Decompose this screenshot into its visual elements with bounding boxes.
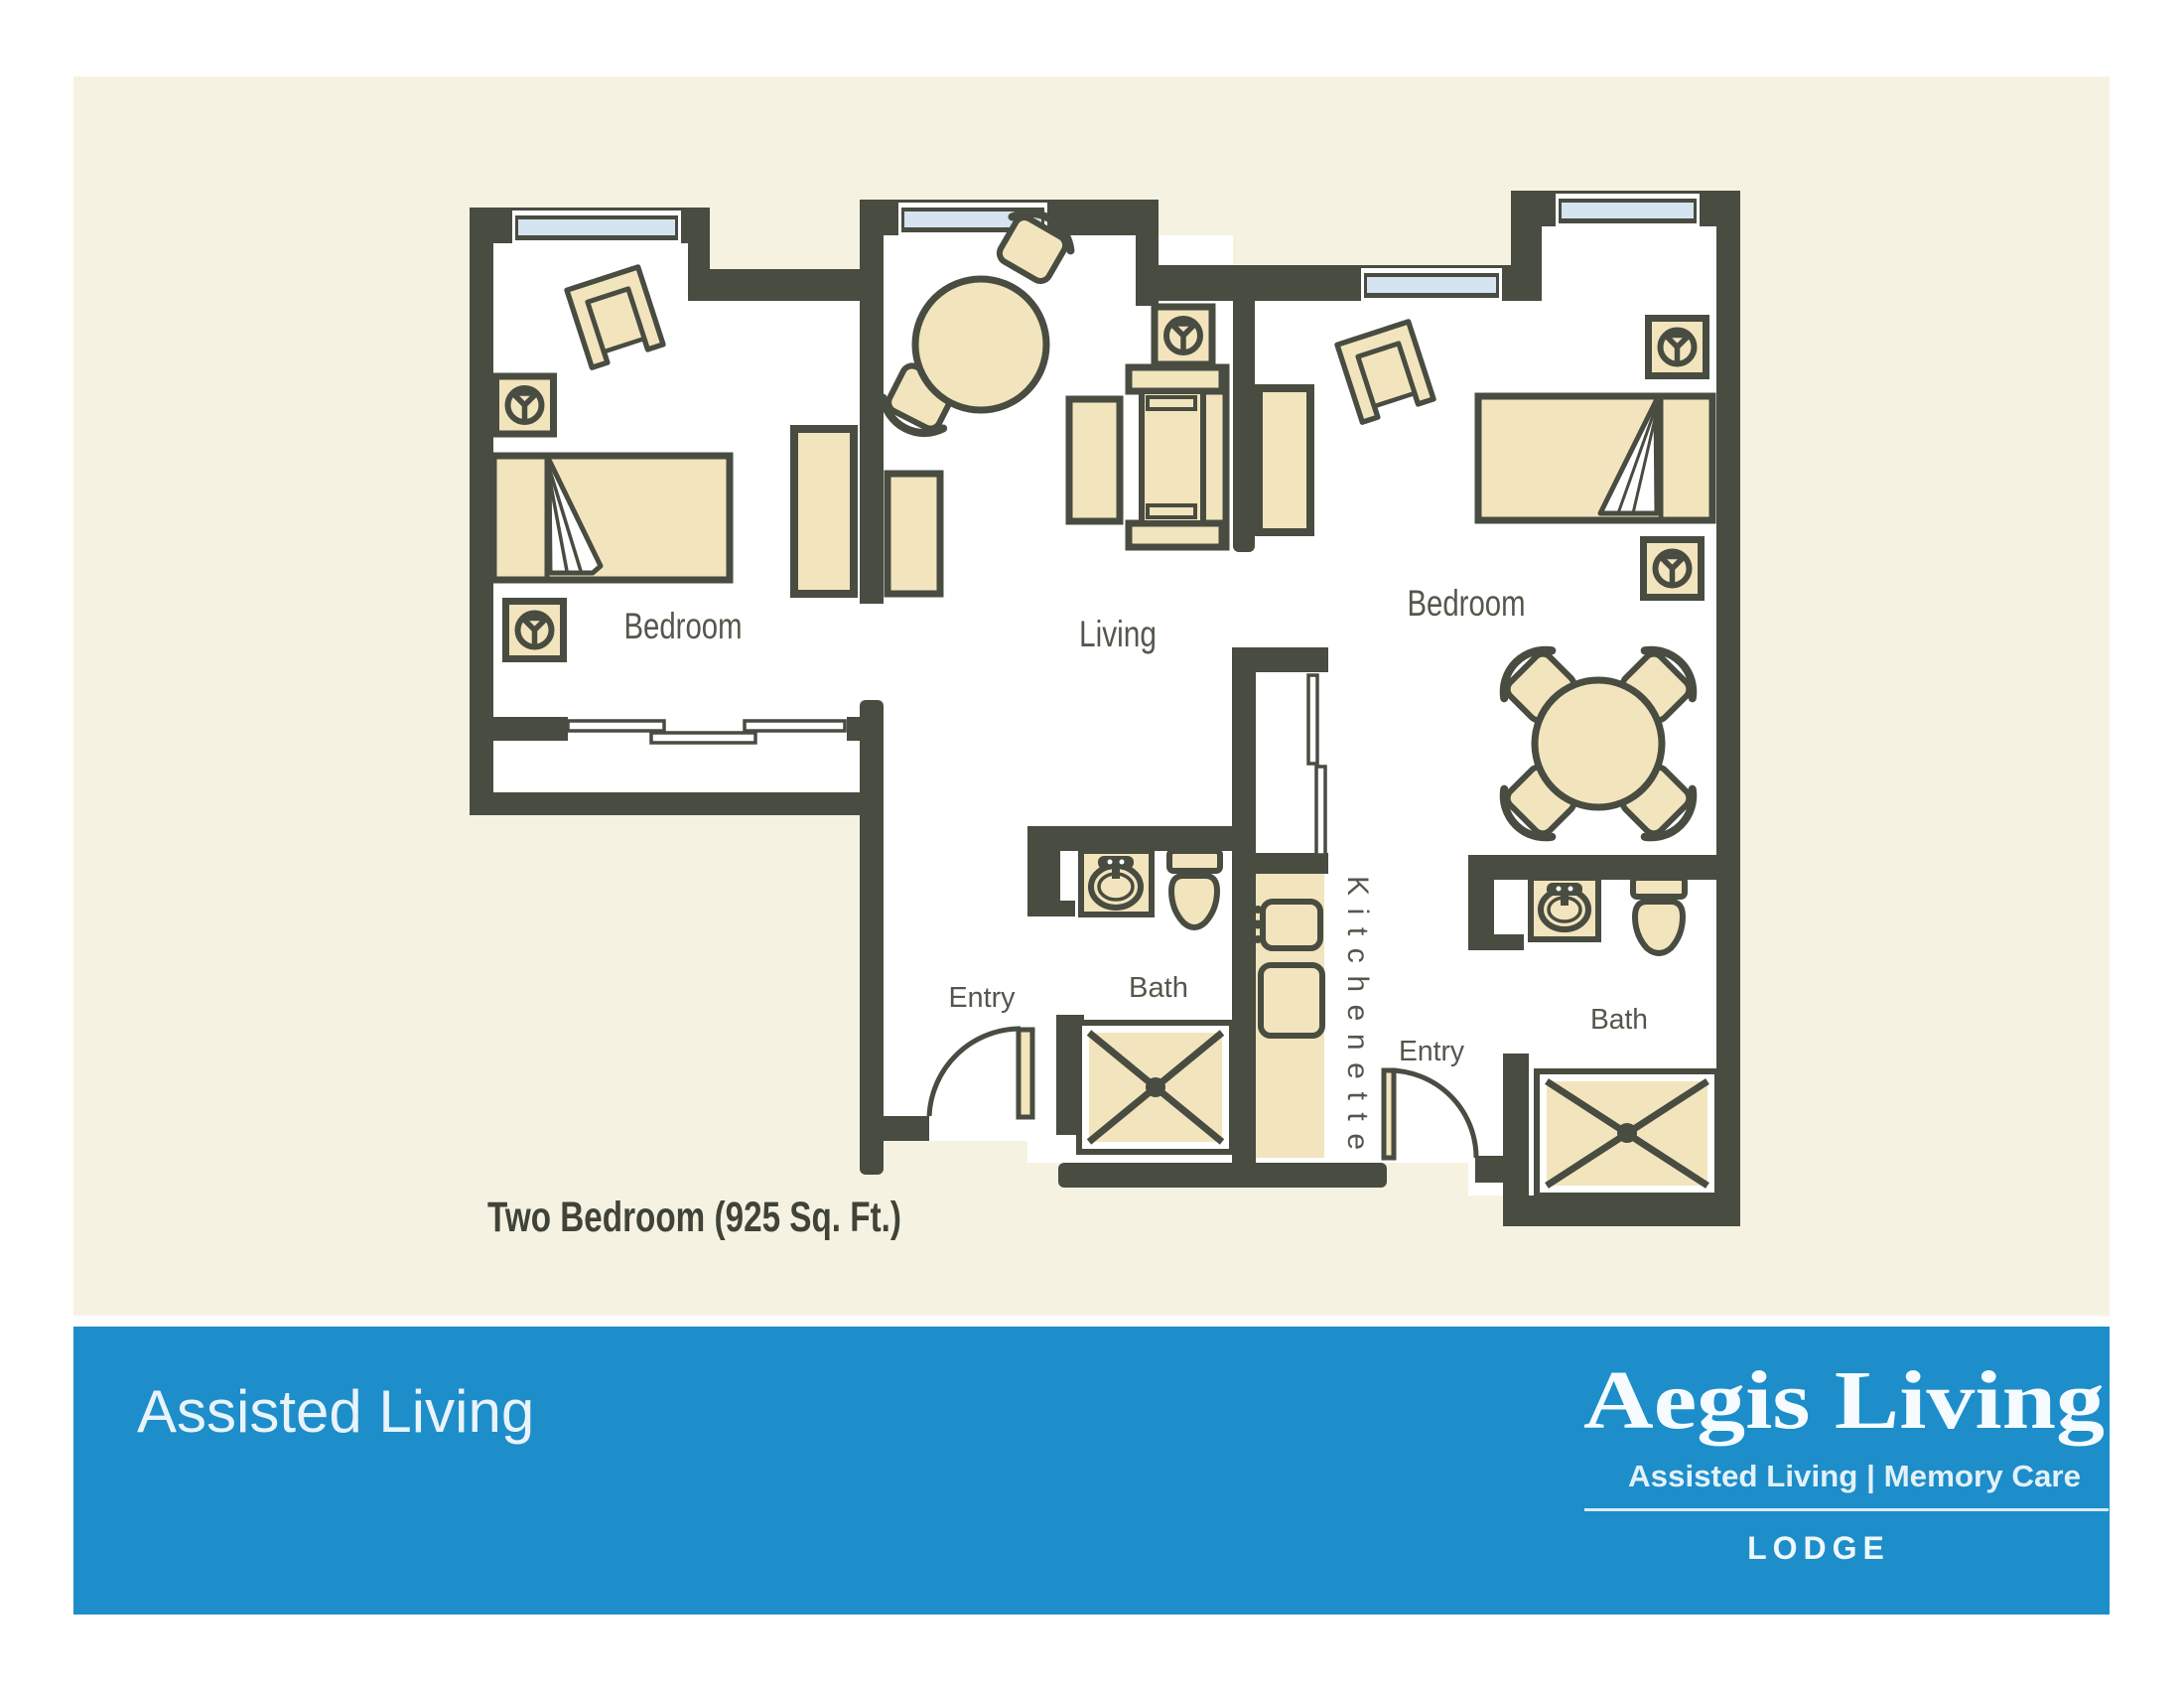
svg-text:Bedroom: Bedroom	[624, 606, 743, 646]
svg-text:Bath: Bath	[1590, 1004, 1648, 1036]
svg-text:Entry: Entry	[1399, 1036, 1464, 1067]
svg-text:Two Bedroom (925 Sq. Ft.): Two Bedroom (925 Sq. Ft.)	[487, 1194, 901, 1241]
svg-text:Bedroom: Bedroom	[1408, 583, 1526, 624]
svg-text:Assisted Living: Assisted Living	[137, 1378, 534, 1445]
svg-text:LODGE: LODGE	[1747, 1530, 1890, 1566]
svg-text:Living: Living	[1079, 614, 1157, 654]
svg-text:Entry: Entry	[949, 982, 1016, 1014]
svg-text:Aegis Living: Aegis Living	[1583, 1354, 2105, 1447]
svg-text:Bath: Bath	[1129, 972, 1188, 1004]
svg-text:Assisted Living | Memory Care: Assisted Living | Memory Care	[1628, 1459, 2081, 1493]
